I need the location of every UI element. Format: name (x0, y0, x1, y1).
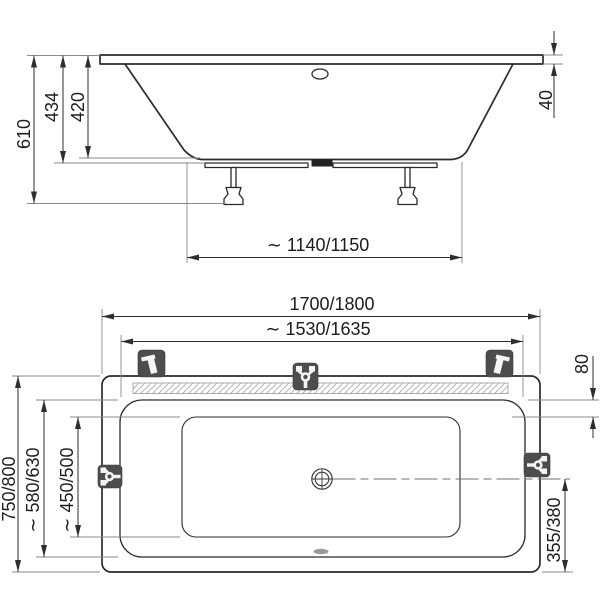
dim-rim-ledge: 80 (572, 354, 593, 438)
dim-label-outer-width: 750/800 (0, 456, 19, 521)
support-rail-right (333, 163, 437, 168)
dim-inner-width: ∼ 580/630 (23, 400, 44, 557)
dim-label-base-length: ∼ 1140/1150 (267, 235, 370, 255)
dim-label-outer-length: 1700/1800 (289, 294, 374, 314)
dim-label-drain-to-end: 355/380 (544, 497, 564, 562)
dim-floor-width: ∼ 450/500 (57, 417, 78, 537)
dim-label-inner-width: ∼ 580/630 (23, 447, 43, 532)
dim-label-inner-depth: 420 (68, 92, 88, 122)
faucet-position-side-left-icon (98, 465, 122, 488)
faucet-position-side-right-icon (524, 453, 550, 477)
tub-rim-profile (100, 55, 543, 64)
side-elevation-view: 610 434 420 40 ∼ 1140/1150 (14, 31, 563, 263)
dim-drain-to-end: 355/380 (544, 479, 565, 572)
dim-label-floor-width: ∼ 450/500 (57, 447, 77, 532)
dim-base-length: ∼ 1140/1150 (187, 235, 462, 258)
dim-label-inner-length: ∼ 1530/1635 (265, 319, 370, 339)
technical-drawing-canvas: 610 434 420 40 ∼ 1140/1150 (0, 0, 600, 600)
dim-rim-thickness: 40 (536, 31, 556, 118)
dim-outer-length: 1700/1800 (102, 294, 540, 317)
dim-label-shell-height: 434 (42, 92, 62, 122)
overflow-hole (312, 69, 328, 79)
dim-label-rim-thickness: 40 (536, 90, 556, 110)
bathtub-drawing-svg: 610 434 420 40 ∼ 1140/1150 (0, 0, 600, 600)
adjustable-foot-left (224, 168, 243, 205)
faucet-position-top-right-icon (486, 350, 513, 377)
tub-inner-rim (120, 400, 525, 557)
dim-total-height: 610 (14, 56, 34, 204)
dim-label-total-height: 610 (14, 119, 34, 149)
faucet-position-top-center-icon (293, 363, 318, 390)
dim-shell-height: 434 (42, 56, 63, 164)
headrest-hatch-strip (133, 383, 508, 394)
dim-inner-depth: 420 (68, 56, 88, 159)
drain (312, 469, 333, 490)
dim-outer-width: 750/800 (0, 376, 19, 572)
faucet-position-top-left-icon (138, 350, 165, 377)
adjustable-foot-right (398, 168, 417, 205)
drain-trap (312, 160, 332, 167)
support-rail-left (205, 163, 308, 168)
dim-label-rim-ledge: 80 (572, 354, 592, 374)
grip-mark (314, 549, 329, 554)
top-plan-view: 1700/1800 ∼ 1530/1635 750/800 ∼ 580/630 … (0, 294, 599, 572)
ext-rim-thickness (543, 55, 563, 64)
dim-inner-length: ∼ 1530/1635 (121, 319, 523, 342)
